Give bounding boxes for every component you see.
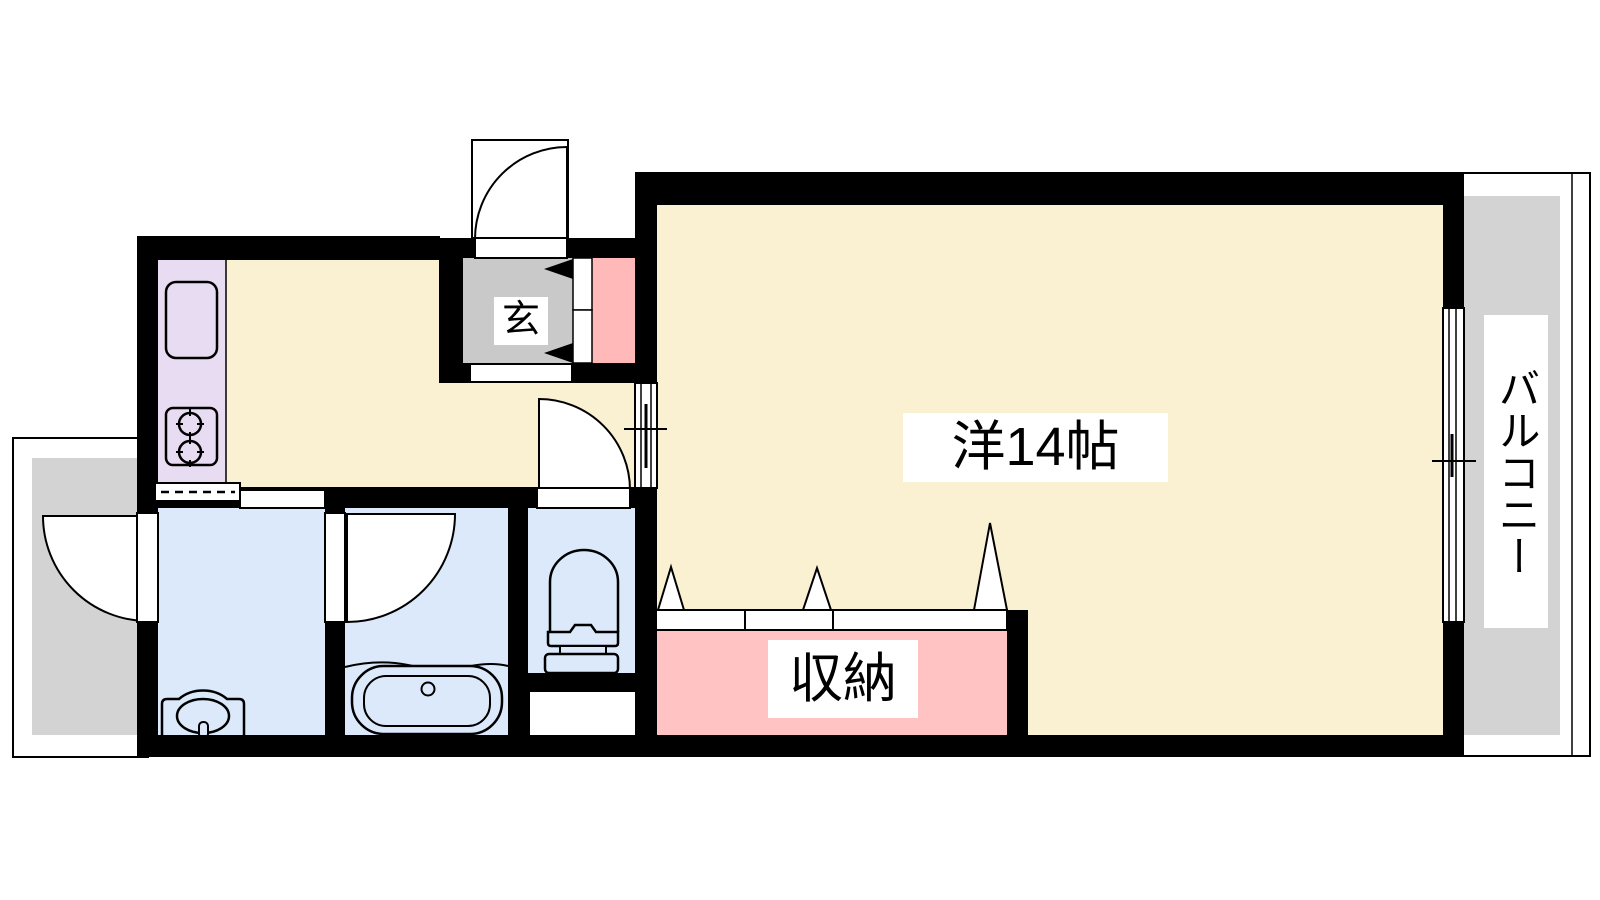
storage-label: 収納 bbox=[768, 640, 918, 718]
toilet-window bbox=[530, 692, 635, 735]
toilet-icon bbox=[545, 550, 618, 673]
genkan-threshold bbox=[470, 364, 572, 382]
floor-plan-canvas: 洋14帖 収納 玄 バルコニー bbox=[0, 0, 1600, 900]
kitchen-sink-icon bbox=[166, 282, 217, 358]
main-room-label: 洋14帖 bbox=[903, 413, 1168, 482]
toilet-doorway bbox=[537, 488, 630, 508]
porch-door-leaf bbox=[137, 513, 158, 622]
stove-icon bbox=[166, 408, 217, 467]
floor-plan-drawing bbox=[0, 0, 1600, 900]
bathroom-door-leaf bbox=[325, 513, 345, 622]
balcony-label: バルコニー bbox=[1484, 315, 1548, 628]
bathtub-icon bbox=[345, 662, 508, 734]
shoe-cabinet-area bbox=[592, 258, 635, 363]
entrance-door-leaf bbox=[475, 238, 567, 258]
entrance-label: 玄 bbox=[494, 297, 548, 345]
